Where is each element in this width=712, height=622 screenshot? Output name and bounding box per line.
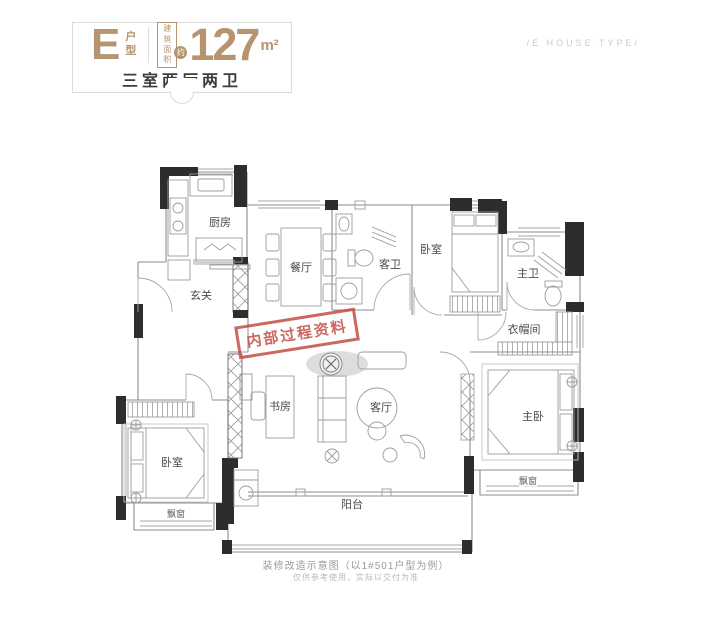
room-label-guest-bath: 客卫: [379, 257, 401, 271]
plan-disclaimer: 仅供参考使用，实际以交付为准: [0, 572, 712, 583]
room-label-balcony: 阳台: [341, 497, 363, 511]
room-label-bedroom-top: 卧室: [420, 242, 442, 256]
plan-caption: 装修改造示意图（以1#501户型为例）: [0, 557, 712, 572]
room-label-foyer: 玄关: [190, 288, 212, 302]
room-label-kitchen: 厨房: [209, 216, 231, 229]
room-label-living: 客厅: [370, 400, 392, 414]
room-label-bay-left: 飘窗: [167, 508, 185, 519]
watermark: [306, 351, 368, 377]
room-label-bedroom-left: 卧室: [161, 455, 183, 469]
room-label-master: 主卧: [522, 410, 544, 423]
bedroom-left-furniture: [124, 402, 208, 503]
bedroom-top-furniture: [450, 212, 500, 312]
area-approx-badge: 约: [174, 46, 187, 59]
floorplan-page: E 户型 建筑面积 约 127 m² 三室两厅两卫 /E HOUSE TYPE/: [0, 0, 712, 622]
room-label-cloakroom: 衣帽间: [508, 322, 541, 336]
balcony-fixtures: [234, 470, 391, 506]
floorplan-svg: 厨房 餐厅 玄关 客卫 卧室 主卫 衣帽间 书房 客厅 主卧 卧室 飘窗 飘窗 …: [0, 0, 712, 622]
room-label-study: 书房: [269, 400, 291, 413]
room-label-dining: 餐厅: [290, 260, 312, 274]
room-label-master-bath: 主卫: [517, 267, 539, 280]
room-label-bay-right: 飘窗: [519, 475, 537, 486]
